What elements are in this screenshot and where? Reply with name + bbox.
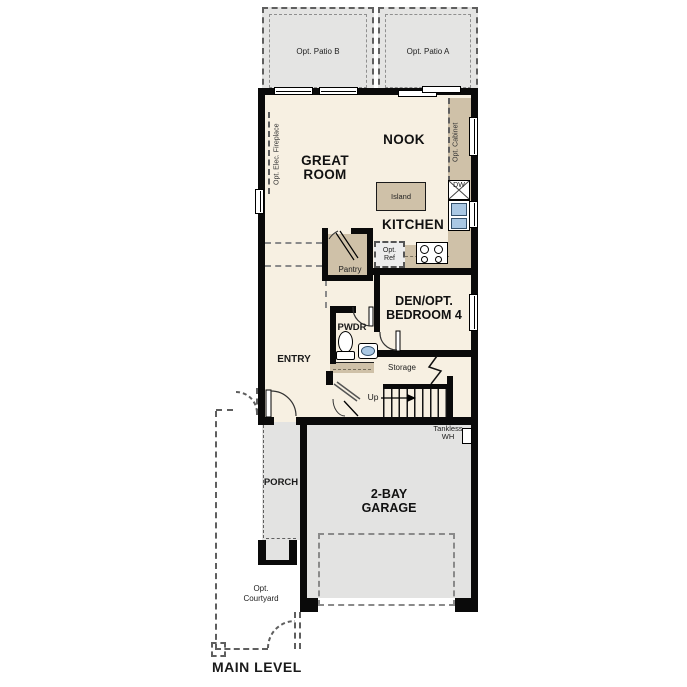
front-door-arc bbox=[271, 391, 296, 416]
great-room-label-2: ROOM bbox=[275, 168, 375, 182]
entry-closet-door-leaf bbox=[344, 401, 358, 416]
pantry-label: Pantry bbox=[328, 265, 372, 274]
pantry-door-leaf bbox=[336, 231, 358, 260]
tankless-label: Tankless WH bbox=[424, 425, 472, 441]
pwdr-label: PWDR bbox=[331, 322, 373, 333]
tankless-label-2: WH bbox=[424, 433, 472, 441]
courtyard-gate-arc-bottom bbox=[268, 621, 295, 648]
opt-cabinet-label: Opt. Cabinet bbox=[450, 99, 462, 185]
great-room-label-1: GREAT bbox=[275, 154, 375, 168]
front-door-leaf bbox=[266, 390, 271, 417]
den-door-leaf bbox=[396, 331, 400, 351]
kitchen-label: KITCHEN bbox=[377, 218, 449, 232]
great-room-label: GREAT ROOM bbox=[275, 154, 375, 182]
floor-plan: Opt. Patio B Opt. Patio A Island DW Opt.… bbox=[0, 0, 687, 687]
courtyard-label-1: Opt. bbox=[228, 584, 294, 594]
den-label-2: BEDROOM 4 bbox=[372, 308, 476, 322]
up-arrow-head bbox=[407, 394, 416, 402]
courtyard-label-2: Courtyard bbox=[228, 594, 294, 604]
storage-label: Storage bbox=[376, 363, 428, 372]
entry-closet-door-arc bbox=[333, 399, 345, 416]
courtyard-label: Opt. Courtyard bbox=[228, 584, 294, 603]
garage-label-1: 2-BAY bbox=[337, 488, 441, 502]
opt-fireplace-label: Opt. Elec. Fireplace bbox=[271, 110, 283, 198]
den-label-1: DEN/OPT. bbox=[372, 294, 476, 308]
garage-label: 2-BAY GARAGE bbox=[337, 488, 441, 515]
nook-label: NOOK bbox=[373, 133, 435, 147]
stair-break-symbol bbox=[429, 356, 441, 384]
entry-label: ENTRY bbox=[268, 354, 320, 365]
entry-angled-wall bbox=[334, 382, 360, 401]
den-door-arc bbox=[380, 332, 397, 350]
courtyard-gate-arc-top bbox=[236, 392, 257, 413]
porch-label: PORCH bbox=[261, 477, 301, 488]
den-label: DEN/OPT. BEDROOM 4 bbox=[372, 294, 476, 322]
garage-label-2: GARAGE bbox=[337, 502, 441, 516]
plan-title: MAIN LEVEL bbox=[212, 659, 332, 675]
door-swing-overlay bbox=[0, 0, 687, 687]
up-label: Up bbox=[364, 392, 382, 402]
